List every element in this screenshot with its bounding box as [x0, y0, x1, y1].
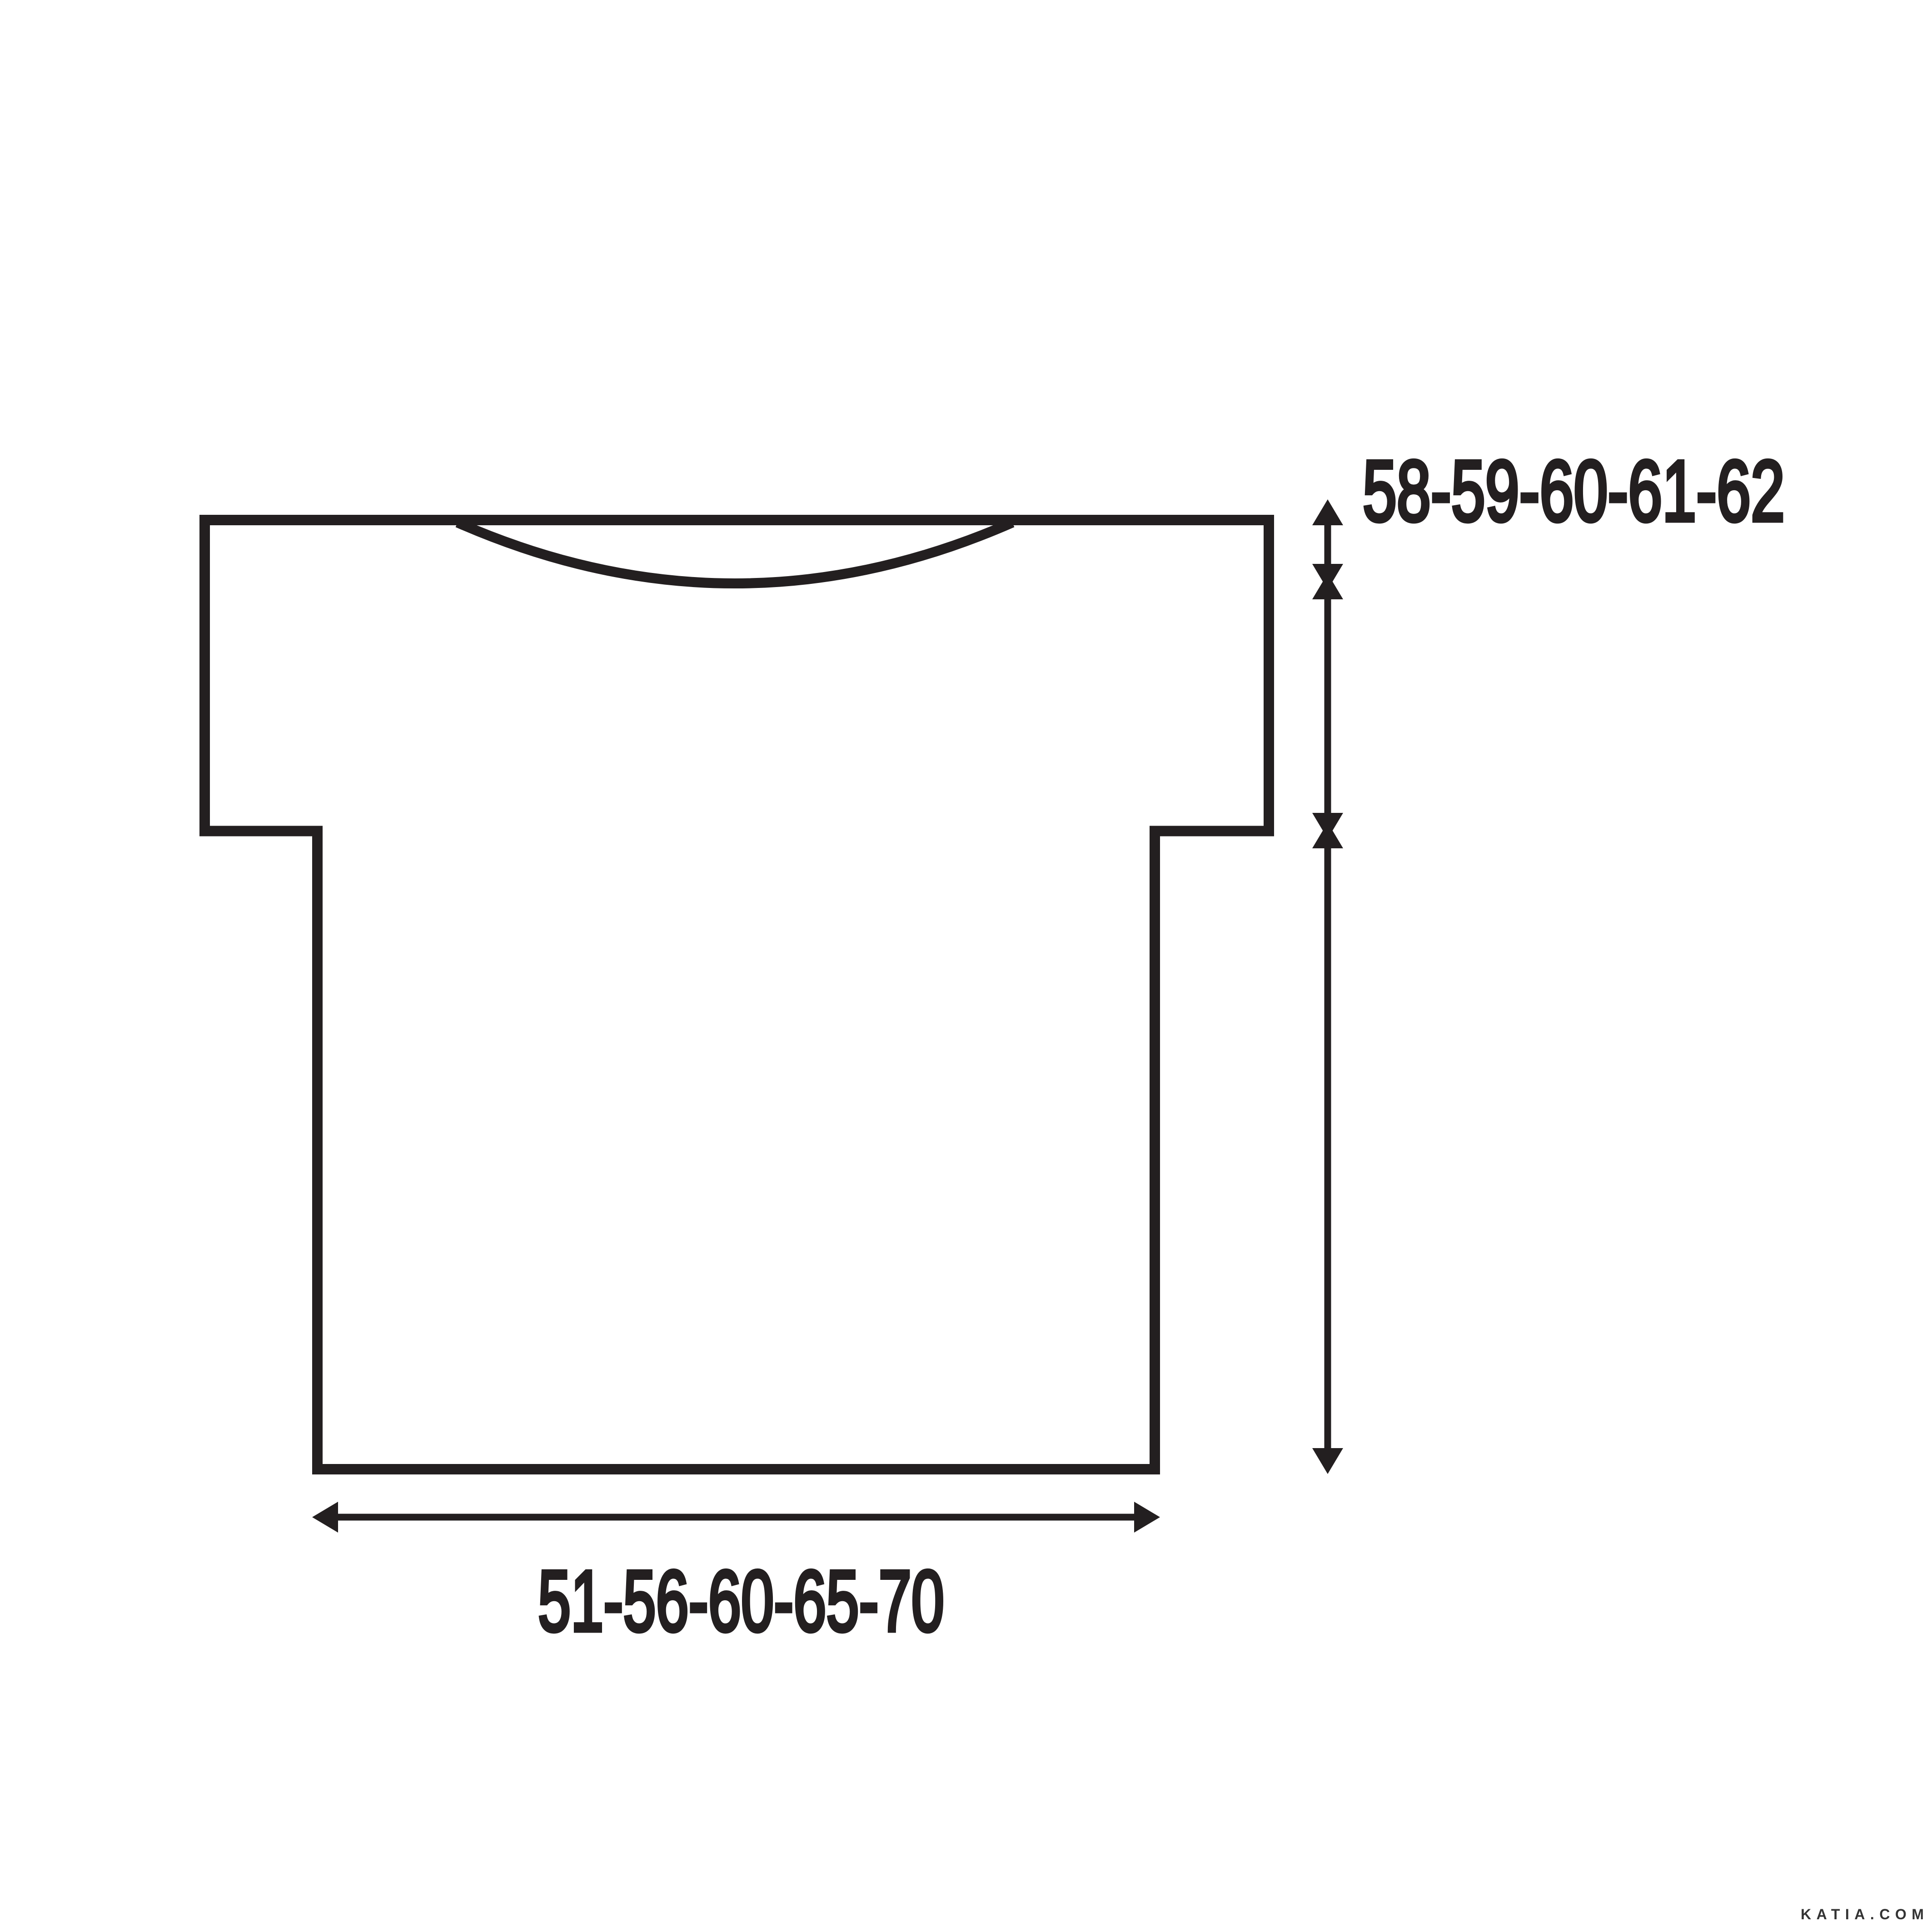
svg-text:51-56-60-65-70: 51-56-60-65-70: [538, 1553, 944, 1649]
svg-text:KATIA.COM: KATIA.COM: [1801, 1906, 1929, 1922]
svg-text:58-59-60-61-62: 58-59-60-61-62: [1363, 443, 1785, 539]
